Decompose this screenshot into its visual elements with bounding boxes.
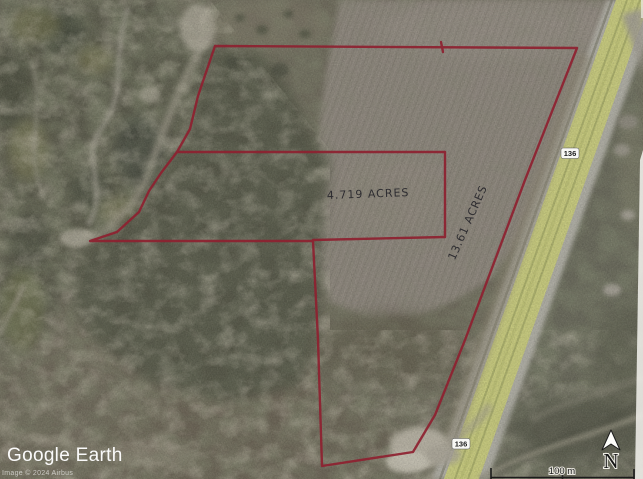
google-earth-logo: Google Earth — [7, 445, 123, 466]
google-earth-map[interactable]: 136 136 4.719 ACRES 13.61 ACRES N 100 m … — [0, 0, 643, 479]
route-136-shield-top: 136 — [561, 148, 579, 159]
route-136-shield-bottom: 136 — [452, 439, 470, 450]
attribution-text: Image © 2024 Airbus — [2, 469, 73, 477]
route-136-label-top: 136 — [564, 149, 577, 158]
scale-label: 100 m — [549, 466, 575, 477]
route-136-label-bottom: 136 — [455, 440, 468, 449]
aerial-imagery: 136 136 4.719 ACRES 13.61 ACRES N 100 m … — [0, 0, 643, 479]
north-label: N — [603, 449, 618, 473]
